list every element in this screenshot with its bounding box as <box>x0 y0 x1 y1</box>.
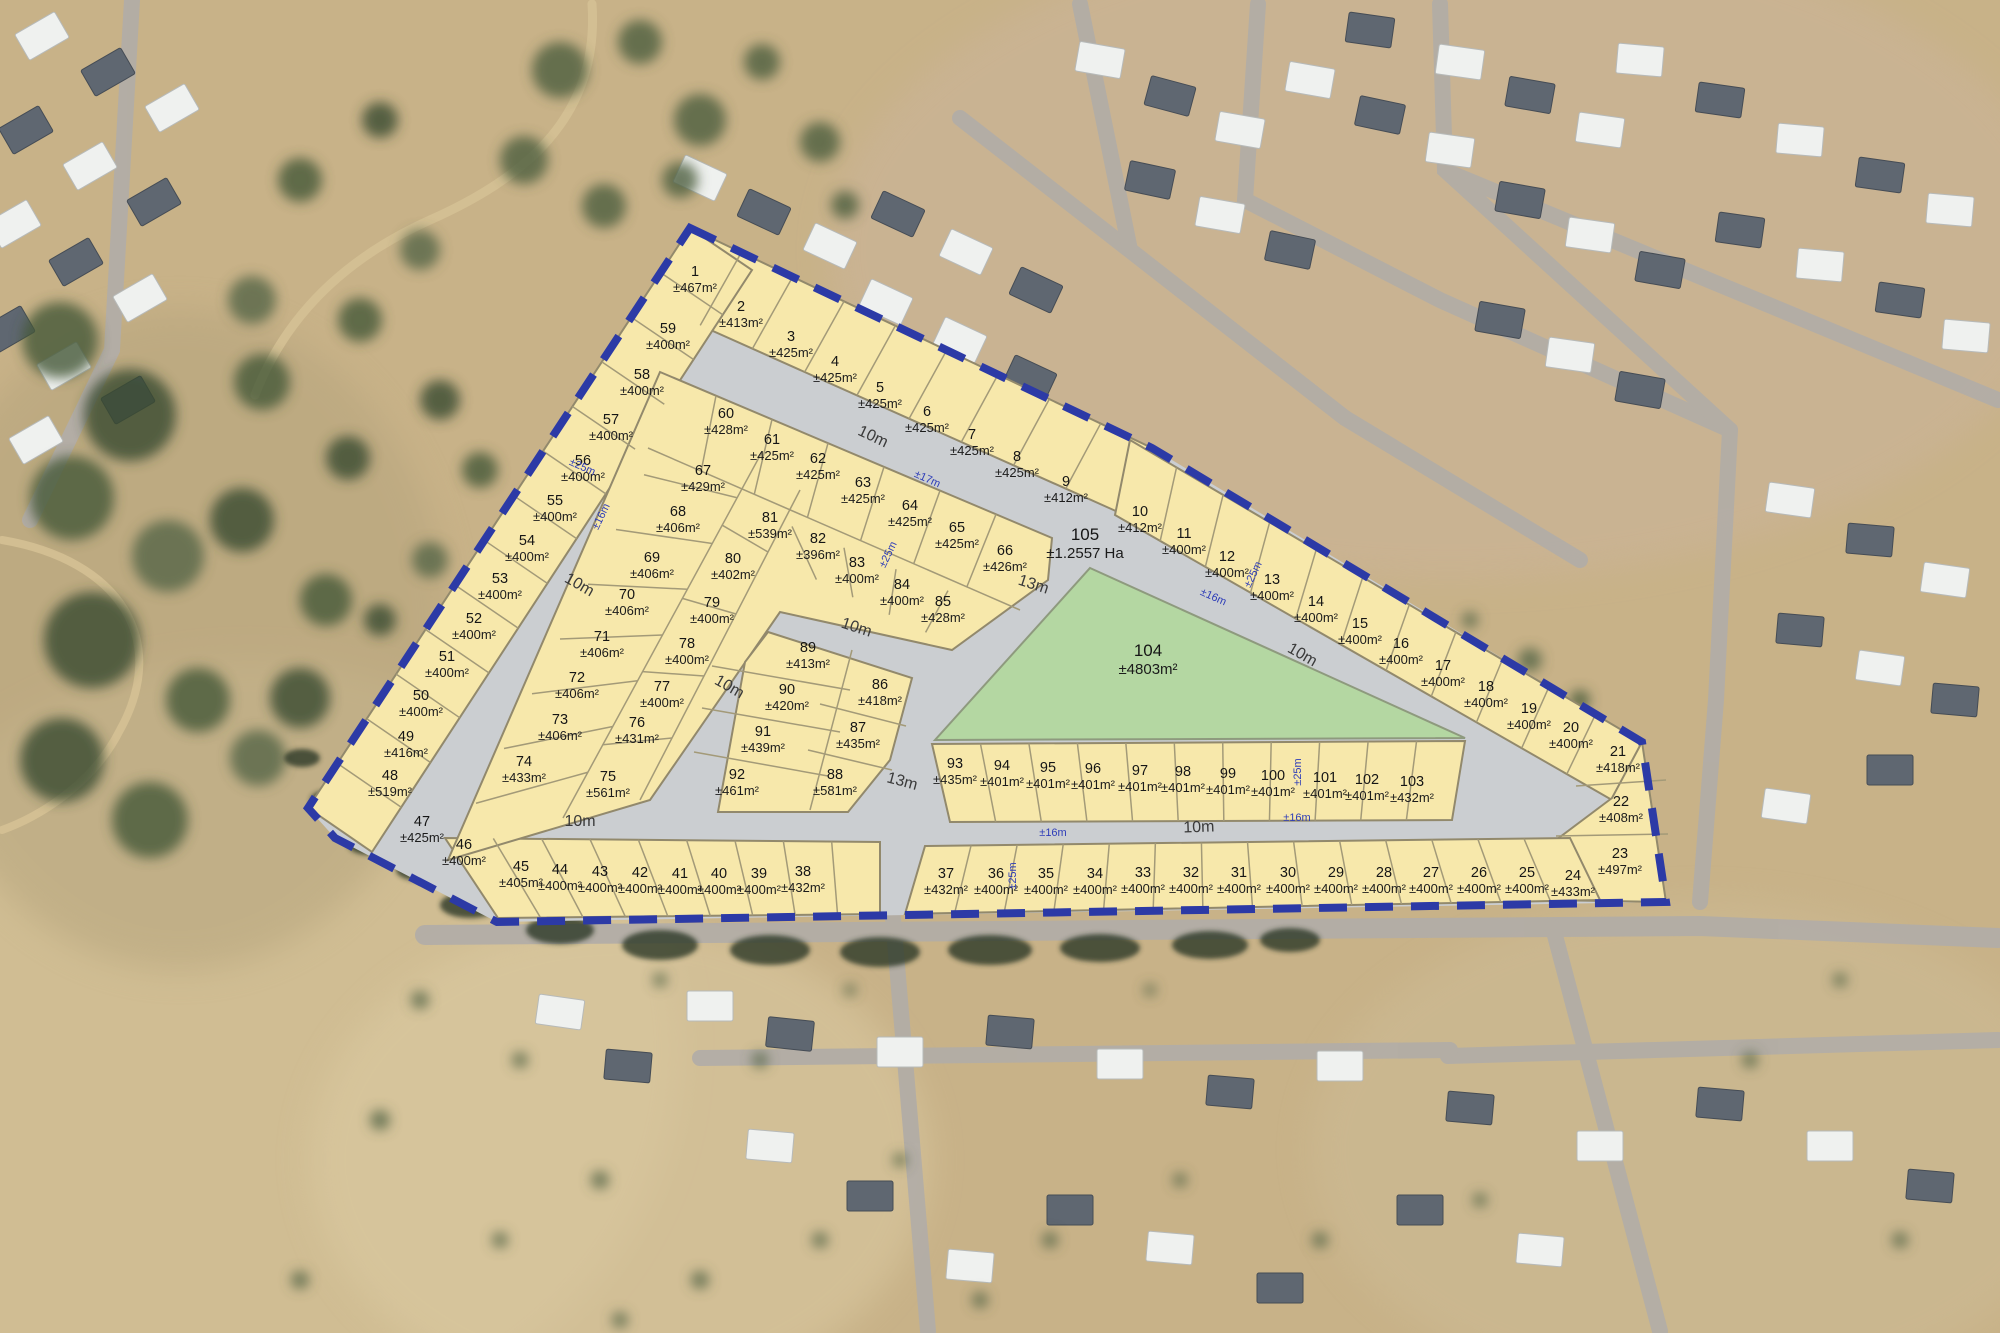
bush <box>893 1153 907 1167</box>
bush <box>1833 973 1847 987</box>
house <box>1776 123 1824 157</box>
dimension-label: ±25m <box>1292 758 1304 785</box>
house <box>1425 132 1475 168</box>
house <box>1206 1075 1254 1109</box>
house <box>1146 1231 1194 1265</box>
house <box>1867 755 1913 785</box>
bush <box>1312 1232 1328 1248</box>
bush <box>582 184 626 228</box>
bush <box>752 1052 768 1068</box>
bush <box>338 298 382 342</box>
bush <box>1742 1052 1758 1068</box>
house <box>1435 44 1485 80</box>
bush <box>532 42 588 98</box>
house <box>1926 193 1974 227</box>
bush <box>1473 1193 1487 1207</box>
bush <box>674 94 726 146</box>
bush <box>462 452 498 488</box>
tree-shadow <box>730 935 810 965</box>
bush <box>420 380 460 420</box>
house <box>1565 217 1615 253</box>
house <box>1695 82 1745 118</box>
bush <box>500 136 548 184</box>
bush <box>972 1292 988 1308</box>
bush <box>210 488 274 552</box>
house <box>1257 1273 1303 1303</box>
house <box>946 1249 994 1283</box>
house <box>1765 482 1815 518</box>
bush <box>1144 984 1156 996</box>
house <box>687 991 733 1021</box>
house <box>1047 1195 1093 1225</box>
house <box>1446 1091 1494 1125</box>
aerial-site-plan: 1±467m²2±413m²3±425m²4±425m²5±425m²6±425… <box>0 0 2000 1333</box>
house <box>1920 562 1970 598</box>
bush <box>653 973 667 987</box>
bush <box>492 1232 508 1248</box>
house <box>746 1129 794 1163</box>
bush <box>744 44 780 80</box>
house <box>1796 248 1844 282</box>
bush <box>618 20 662 64</box>
bush <box>234 354 290 410</box>
bush <box>278 158 322 202</box>
bush <box>844 984 856 996</box>
bush <box>84 369 176 461</box>
house <box>1545 337 1595 373</box>
bush <box>400 230 440 270</box>
bush <box>364 604 396 636</box>
dimension-label: ±16m <box>1039 827 1066 839</box>
house <box>1931 683 1979 717</box>
bush <box>44 592 140 688</box>
bush <box>20 718 104 802</box>
house <box>1516 1233 1564 1267</box>
house <box>766 1017 815 1052</box>
house <box>604 1049 652 1083</box>
bush <box>326 436 370 480</box>
road-width-label: 10m <box>1183 818 1215 836</box>
bush <box>831 191 859 219</box>
bush <box>362 102 398 138</box>
bush <box>812 1232 828 1248</box>
house <box>1906 1169 1954 1203</box>
bush <box>1173 1173 1187 1187</box>
house <box>1855 650 1905 686</box>
tree-shadow <box>948 935 1032 965</box>
house <box>1097 1049 1143 1079</box>
house <box>1317 1051 1363 1081</box>
house <box>1855 157 1905 193</box>
aerial-map-canvas: 1±467m²2±413m²3±425m²4±425m²5±425m²6±425… <box>0 0 2000 1333</box>
house <box>847 1181 893 1211</box>
house <box>1577 1131 1623 1161</box>
house <box>1575 112 1625 148</box>
tree-shadow <box>284 749 320 767</box>
bush <box>291 1271 309 1289</box>
bush <box>412 542 448 578</box>
house <box>1776 613 1824 647</box>
tree-shadow <box>1260 928 1320 952</box>
bush <box>800 122 840 162</box>
bush <box>1042 1232 1058 1248</box>
bush <box>612 1312 628 1328</box>
dimension-label: ±25m <box>1007 862 1019 889</box>
bush <box>112 782 188 858</box>
house <box>1397 1195 1443 1225</box>
house <box>1696 1087 1744 1121</box>
tree-shadow <box>1060 934 1140 962</box>
house <box>1616 43 1664 77</box>
bush <box>691 1271 709 1289</box>
bush <box>662 162 698 198</box>
bush <box>22 302 98 378</box>
bush <box>512 1052 528 1068</box>
dimension-label: ±16m <box>1283 812 1310 824</box>
bush <box>30 456 114 540</box>
bush <box>370 1110 390 1130</box>
house <box>1345 12 1395 48</box>
house <box>1761 788 1811 824</box>
tree-shadow <box>622 930 698 960</box>
bush <box>270 668 330 728</box>
tree-shadow <box>840 937 920 967</box>
bush <box>1892 1232 1908 1248</box>
bush <box>591 1171 609 1189</box>
bush <box>166 668 230 732</box>
house <box>1875 282 1925 318</box>
bush <box>230 730 286 786</box>
road-width-label: 10m <box>564 813 595 830</box>
bush <box>411 991 429 1009</box>
house <box>1846 523 1894 557</box>
house <box>1807 1131 1853 1161</box>
house <box>1942 319 1990 353</box>
bush <box>1462 612 1478 628</box>
tree-shadow <box>1172 931 1248 959</box>
bush <box>132 520 204 592</box>
house <box>1715 212 1765 248</box>
bush <box>300 574 352 626</box>
bush <box>228 276 276 324</box>
house <box>986 1015 1034 1049</box>
house <box>877 1037 923 1067</box>
house <box>535 994 585 1030</box>
